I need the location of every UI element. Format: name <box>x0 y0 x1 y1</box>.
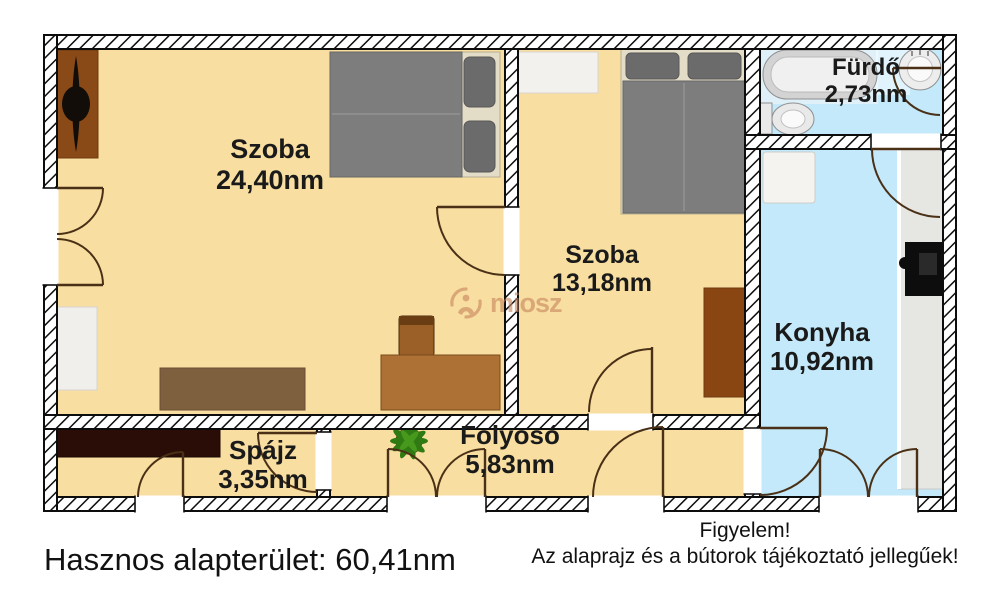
table-room1 <box>160 368 305 410</box>
room-area: 5,83nm <box>410 450 610 479</box>
notice-title: Figyelem! <box>512 518 978 544</box>
room-label-konyha: Konyha 10,92nm <box>732 318 912 377</box>
notice-text: Figyelem! Az alaprajz és a bútorok tájék… <box>512 518 978 571</box>
wardrobe-room1 <box>55 50 98 158</box>
room-name: Spájz <box>183 436 343 465</box>
room-area: 2,73nm <box>786 81 946 108</box>
room-name: Szoba <box>502 241 702 269</box>
room-label-folyoso: Folyosó 5,83nm <box>410 421 610 480</box>
room-name: Konyha <box>732 318 912 347</box>
notice-body: Az alaprajz és a bútorok tájékoztató jel… <box>512 544 978 570</box>
room-name: Szoba <box>150 134 390 165</box>
room-name: Fürdő <box>786 54 946 81</box>
outer-wall-top <box>44 35 956 49</box>
white-cabinet-room1 <box>53 307 97 390</box>
room-area: 10,92nm <box>732 347 912 376</box>
dresser-room2 <box>513 52 598 93</box>
room-label-szoba-1: Szoba 24,40nm <box>150 134 390 195</box>
double-bed-room2 <box>621 49 747 214</box>
floorplan-image: Szoba 24,40nm Szoba 13,18nm Fürdő 2,73nm… <box>0 0 1000 610</box>
room-area: 24,40nm <box>150 165 390 196</box>
room-label-szoba-2: Szoba 13,18nm <box>502 241 702 298</box>
room-area: 13,18nm <box>502 269 702 297</box>
room-area: 3,35nm <box>183 465 343 494</box>
room-name: Folyosó <box>410 421 610 450</box>
room-label-spajz: Spájz 3,35nm <box>183 436 343 495</box>
total-area-text: Hasznos alapterület: 60,41nm <box>44 542 456 578</box>
room-label-furdo: Fürdő 2,73nm <box>786 54 946 108</box>
stove <box>899 242 943 296</box>
fridge <box>763 152 815 203</box>
